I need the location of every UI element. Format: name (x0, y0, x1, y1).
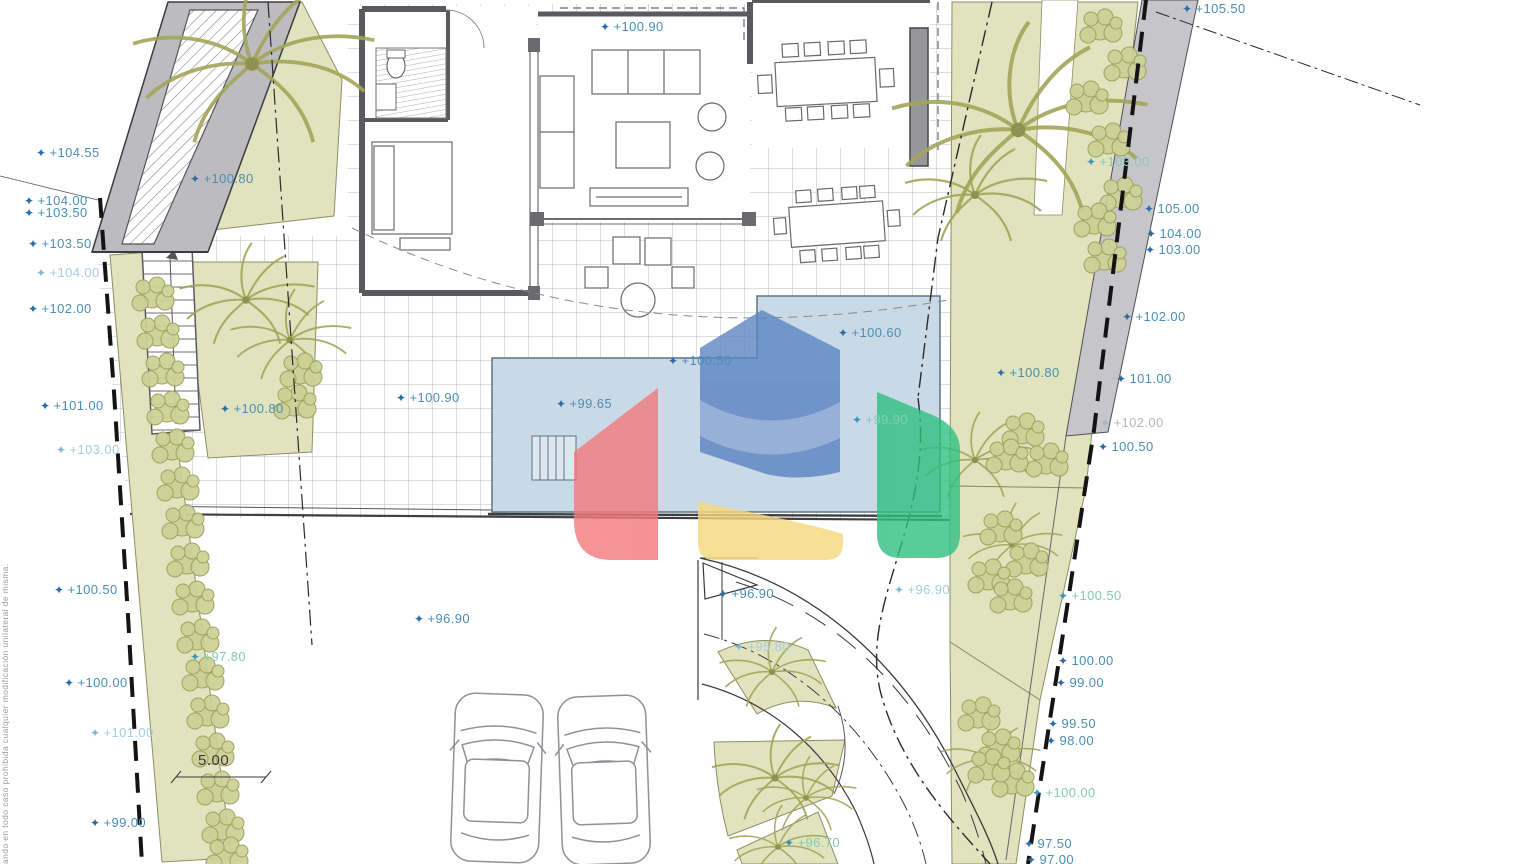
survey-marker-icon: ✦ (838, 327, 848, 339)
elevation-label: ✦+103.50 (24, 206, 88, 219)
elevation-label: ✦+100.80 (220, 402, 284, 415)
elevation-label: ✦+97.80 (190, 650, 246, 663)
elevation-label: ✦+100.90 (600, 20, 664, 33)
survey-marker-icon: ✦ (1182, 3, 1192, 15)
sink (376, 84, 396, 110)
pool-steps (532, 436, 576, 480)
survey-marker-icon: ✦ (1098, 441, 1108, 453)
survey-marker-icon: ✦ (1144, 203, 1154, 215)
survey-marker-icon: ✦ (54, 584, 64, 596)
survey-marker-icon: ✦ (190, 651, 200, 663)
elevation-label: ✦+102.00 (28, 302, 92, 315)
elevation-label: ✦+99.00 (90, 816, 146, 829)
elevation-label: ✦104.00 (1146, 227, 1202, 240)
elevation-label: ✦+100.50 (1058, 589, 1122, 602)
elevation-label: ✦+101.00 (90, 726, 154, 739)
survey-marker-icon: ✦ (1024, 838, 1034, 850)
elevation-label: ✦+99.65 (556, 397, 612, 410)
survey-marker-icon: ✦ (220, 403, 230, 415)
survey-marker-icon: ✦ (1100, 417, 1110, 429)
survey-marker-icon: ✦ (600, 21, 610, 33)
dimension-label: 5.00 (198, 752, 229, 769)
wall-pillar (910, 28, 928, 166)
car (553, 694, 655, 864)
survey-marker-icon: ✦ (396, 392, 406, 404)
elevation-label: ✦+103.00 (1086, 155, 1150, 168)
survey-marker-icon: ✦ (734, 641, 744, 653)
survey-marker-icon: ✦ (1056, 677, 1066, 689)
elevation-label: ✦+100.00 (1032, 786, 1096, 799)
survey-marker-icon: ✦ (1058, 590, 1068, 602)
car (446, 692, 548, 863)
survey-marker-icon: ✦ (40, 400, 50, 412)
survey-marker-icon: ✦ (90, 817, 100, 829)
survey-marker-icon: ✦ (24, 207, 34, 219)
elevation-label: ✦+105.50 (1182, 2, 1246, 15)
elevation-label: ✦97.00 (1026, 853, 1074, 864)
elevation-label: ✦98.00 (1046, 734, 1094, 747)
elevation-label: ✦103.00 (1145, 243, 1201, 256)
survey-marker-icon: ✦ (90, 727, 100, 739)
elevation-label: ✦+96.90 (894, 583, 950, 596)
survey-marker-icon: ✦ (668, 355, 678, 367)
survey-marker-icon: ✦ (996, 367, 1006, 379)
elevation-label: ✦+96.70 (784, 836, 840, 849)
elevation-label: ✦99.50 (1048, 717, 1096, 730)
elevation-label: ✦+101.00 (40, 399, 104, 412)
survey-marker-icon: ✦ (190, 173, 200, 185)
survey-marker-icon: ✦ (36, 267, 46, 279)
elevation-label: ✦+100.80 (996, 366, 1060, 379)
survey-marker-icon: ✦ (28, 238, 38, 250)
survey-marker-icon: ✦ (1086, 156, 1096, 168)
elevation-label: ✦+100.50 (54, 583, 118, 596)
elevation-label: ✦101.00 (1116, 372, 1172, 385)
survey-marker-icon: ✦ (852, 414, 862, 426)
survey-marker-icon: ✦ (1048, 718, 1058, 730)
survey-marker-icon: ✦ (1032, 787, 1042, 799)
elevation-label: ✦+100.90 (396, 391, 460, 404)
survey-marker-icon: ✦ (1046, 735, 1056, 747)
elevation-label: ✦+99.90 (852, 413, 908, 426)
elevation-label: ✦+100.00 (64, 676, 128, 689)
side-note-text: ando en todo caso prohibida cualquier mo… (0, 588, 14, 864)
survey-marker-icon: ✦ (64, 677, 74, 689)
elevation-label: ✦+103.50 (28, 237, 92, 250)
elevation-label: ✦100.50 (1098, 440, 1154, 453)
elevation-label: ✦+102.00 (1122, 310, 1186, 323)
elevation-label: ✦+95.80 (734, 640, 790, 653)
survey-marker-icon: ✦ (56, 444, 66, 456)
bed (372, 142, 452, 250)
elevation-label: ✦+96.90 (414, 612, 470, 625)
elevation-label: ✦99.00 (1056, 676, 1104, 689)
survey-marker-icon: ✦ (718, 588, 728, 600)
elevation-label: ✦+100.60 (838, 326, 902, 339)
survey-marker-icon: ✦ (1145, 244, 1155, 256)
elevation-label: ✦+104.00 (36, 266, 100, 279)
survey-marker-icon: ✦ (894, 584, 904, 596)
survey-marker-icon: ✦ (24, 195, 34, 207)
survey-marker-icon: ✦ (1146, 228, 1156, 240)
survey-marker-icon: ✦ (414, 613, 424, 625)
survey-marker-icon: ✦ (556, 398, 566, 410)
elevation-label: ✦97.50 (1024, 837, 1072, 850)
site-plan-page: ✦+104.55 ✦+104.00 ✦+103.50 ✦+103.50 ✦+10… (0, 0, 1536, 864)
elevation-label: ✦+100.80 (190, 172, 254, 185)
survey-marker-icon: ✦ (1116, 373, 1126, 385)
elevation-label: ✦105.00 (1144, 202, 1200, 215)
elevation-label: ✦+100.50 (668, 354, 732, 367)
survey-marker-icon: ✦ (1058, 655, 1068, 667)
survey-marker-icon: ✦ (784, 837, 794, 849)
elevation-label: ✦+102.00 (1100, 416, 1164, 429)
site-plan-drawing (0, 0, 1536, 864)
elevation-label: ✦+96.90 (718, 587, 774, 600)
elevation-label: ✦+103.00 (56, 443, 120, 456)
elevation-label: ✦100.00 (1058, 654, 1114, 667)
survey-marker-icon: ✦ (1026, 854, 1036, 864)
survey-marker-icon: ✦ (1122, 311, 1132, 323)
survey-marker-icon: ✦ (28, 303, 38, 315)
survey-marker-icon: ✦ (36, 147, 46, 159)
elevation-label: ✦+104.55 (36, 146, 100, 159)
